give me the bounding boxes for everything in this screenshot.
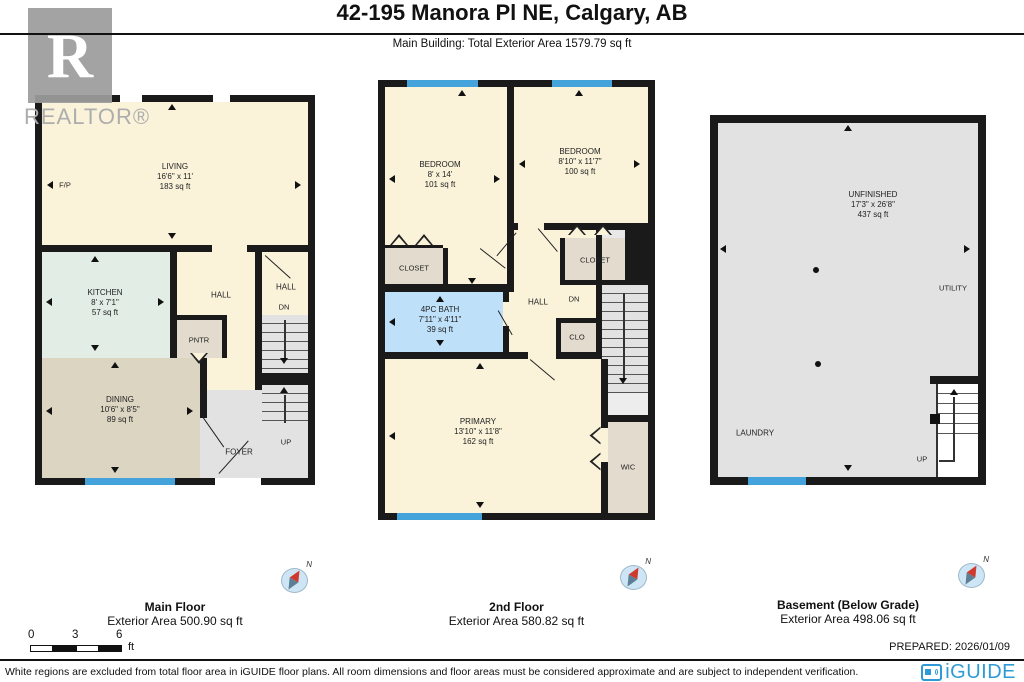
stair-arrow-stem (284, 395, 286, 423)
door-gap (528, 352, 556, 359)
room-name: UNFINISHED (849, 190, 898, 200)
floor-area: Exterior Area 580.82 sq ft (378, 614, 655, 628)
wall (385, 352, 510, 359)
page-subtitle: Main Building: Total Exterior Area 1579.… (0, 38, 1024, 50)
wall (596, 223, 602, 359)
primary-bedroom-label: PRIMARY 13'10" x 11'8" 162 sq ft (454, 417, 502, 447)
stair-arrow-down (619, 378, 627, 384)
scale-segment (53, 645, 76, 652)
stair-arrow-stem (953, 397, 955, 461)
wall (507, 87, 514, 223)
utility-label: UTILITY (939, 284, 967, 293)
floor-plan-page: 42-195 Manora Pl NE, Calgary, AB Main Bu… (0, 0, 1024, 682)
room-area: 100 sq ft (558, 167, 601, 177)
second-floor-caption: 2nd Floor Exterior Area 580.82 sq ft (378, 600, 655, 628)
footer-divider (0, 659, 1024, 661)
stair-arrow-up (950, 389, 958, 395)
dimension-arrow (720, 245, 726, 253)
dimension-arrow (111, 467, 119, 473)
wall (560, 280, 625, 285)
dimension-arrow (519, 160, 525, 168)
room-name: LIVING (157, 162, 193, 172)
wall (255, 245, 262, 390)
support-post-dot (813, 267, 819, 273)
room-area: 39 sq ft (419, 325, 462, 335)
support-post-dot (815, 361, 821, 367)
window (552, 80, 612, 87)
dimension-arrow (436, 340, 444, 346)
stair-arrow-down (280, 358, 288, 364)
bedroom-1-label: BEDROOM 8' x 14' 101 sq ft (419, 160, 460, 190)
dimension-arrow (168, 104, 176, 110)
pantry-door-icon (190, 353, 208, 364)
pantry-label: PNTR (189, 336, 209, 345)
room-name: 4PC BATH (419, 305, 462, 315)
wall (556, 318, 596, 323)
dimension-arrow (575, 90, 583, 96)
room-area: 437 sq ft (849, 210, 898, 220)
iguide-logo-icon (921, 664, 942, 681)
scale-bar: 0 3 6 ft (28, 629, 178, 655)
kitchen-label: KITCHEN 8' x 7'1" 57 sq ft (87, 288, 122, 318)
room-dims: 16'6" x 11' (157, 172, 193, 182)
dimension-arrow (476, 363, 484, 369)
dimension-arrow (844, 125, 852, 131)
main-floor-plan: LIVING 16'6" x 11' 183 sq ft KITCHEN 8' … (35, 95, 315, 485)
stairs-up-label: UP (281, 438, 291, 447)
room-dims: 13'10" x 11'8" (454, 427, 502, 437)
dimension-arrow (494, 175, 500, 183)
bathroom-label: 4PC BATH 7'11" x 4'11" 39 sq ft (419, 305, 462, 335)
room-area: 57 sq ft (87, 308, 122, 318)
living-room-label: LIVING 16'6" x 11' 183 sq ft (157, 162, 193, 192)
door-gap (518, 223, 544, 230)
page-title: 42-195 Manora Pl NE, Calgary, AB (0, 0, 1024, 26)
dimension-arrow (46, 298, 52, 306)
window (397, 513, 482, 520)
bifold-door-icon (594, 224, 612, 235)
compass-north-label: N (983, 555, 989, 564)
wall (602, 415, 648, 422)
dimension-arrow (458, 90, 466, 96)
bifold-door-icon (568, 224, 586, 235)
dimension-arrow (158, 298, 164, 306)
dimension-arrow (389, 318, 395, 326)
dimension-arrow (389, 175, 395, 183)
stair-arrow-stem (623, 293, 625, 379)
bifold-gap (601, 428, 608, 462)
basement-plan: UNFINISHED 17'3" x 26'8" 437 sq ft UTILI… (710, 115, 986, 485)
bifold-door-icon (390, 234, 408, 245)
floor-area: Exterior Area 500.90 sq ft (35, 614, 315, 628)
dimension-arrow (964, 245, 970, 253)
stair-landing-wall (262, 375, 288, 381)
hall-label: HALL (211, 291, 231, 300)
dimension-arrow (168, 233, 176, 239)
room-dims: 10'6" x 8'5" (100, 405, 139, 415)
hall-closet-label: CLO (569, 333, 584, 342)
stair-arrow-stem (939, 460, 955, 462)
floor-name: Main Floor (35, 600, 315, 614)
window (748, 477, 806, 485)
closet-label: CLOSET (399, 264, 429, 273)
scale-tick: 6 (116, 629, 122, 641)
wall (200, 358, 207, 418)
wall (556, 318, 561, 353)
scale-segment (99, 645, 122, 652)
stairs-dn-label: DN (279, 303, 290, 312)
wall (170, 252, 177, 358)
iguide-icon-inner (925, 669, 931, 675)
room-dims: 7'11" x 4'11" (419, 315, 462, 325)
room-dims: 8'10" x 11'7" (558, 157, 601, 167)
room-area: 89 sq ft (100, 415, 139, 425)
stair-arrow-stem (284, 320, 286, 358)
dimension-arrow (436, 296, 444, 302)
room-area: 101 sq ft (419, 180, 460, 190)
iguide-logo: iGUIDE (921, 661, 1016, 682)
stairs-treads (602, 285, 648, 393)
dimension-arrow (389, 432, 395, 440)
compass-icon: N (617, 559, 651, 593)
bedroom-2-label: BEDROOM 8'10" x 11'7" 100 sq ft (558, 147, 601, 177)
compass-icon: N (278, 562, 312, 596)
window-gap (120, 95, 142, 102)
main-floor-caption: Main Floor Exterior Area 500.90 sq ft (35, 600, 315, 628)
compass-north-label: N (645, 557, 651, 566)
scale-tick: 3 (72, 629, 78, 641)
stair-arrow-up (280, 387, 288, 393)
dimension-arrow (634, 160, 640, 168)
second-floor-plan: BEDROOM 8' x 14' 101 sq ft BEDROOM 8'10"… (378, 80, 655, 520)
header-divider (0, 33, 1024, 35)
laundry-label: LAUNDRY (736, 429, 774, 438)
dining-room-label: DINING 10'6" x 8'5" 89 sq ft (100, 395, 139, 425)
stairs-dn-label: DN (569, 295, 580, 304)
floor-name: 2nd Floor (378, 600, 655, 614)
unfinished-label: UNFINISHED 17'3" x 26'8" 437 sq ft (849, 190, 898, 220)
compass-icon: N (955, 557, 989, 591)
basement-caption: Basement (Below Grade) Exterior Area 498… (710, 598, 986, 626)
wall (560, 238, 565, 280)
wall (385, 284, 507, 292)
bifold-door-icon (415, 234, 433, 245)
iguide-logo-text: iGUIDE (945, 661, 1016, 682)
scale-bar-segments (30, 645, 122, 652)
room-area: 162 sq ft (454, 437, 502, 447)
scale-unit: ft (128, 641, 134, 653)
scale-segment (76, 645, 99, 652)
stairs-up-label: UP (917, 455, 927, 464)
room-name: BEDROOM (419, 160, 460, 170)
room-dims: 17'3" x 26'8" (849, 200, 898, 210)
wall (177, 315, 227, 320)
room-name: KITCHEN (87, 288, 122, 298)
room-name: PRIMARY (454, 417, 502, 427)
disclaimer-text: White regions are excluded from total fl… (5, 666, 905, 678)
dimension-arrow (47, 181, 53, 189)
closet-label: CLOSET (580, 256, 610, 265)
room-name: DINING (100, 395, 139, 405)
scale-tick: 0 (28, 629, 34, 641)
floor-name: Basement (Below Grade) (710, 598, 986, 612)
dimension-arrow (187, 407, 193, 415)
room-dims: 8' x 14' (419, 170, 460, 180)
dimension-arrow (295, 181, 301, 189)
window (85, 478, 175, 485)
realtor-logo-text: REALTOR® (24, 104, 144, 130)
wall (930, 376, 986, 384)
dimension-arrow (91, 256, 99, 262)
dimension-arrow (91, 345, 99, 351)
room-area: 183 sq ft (157, 182, 193, 192)
stair-edge-line (936, 384, 938, 477)
wall (222, 320, 227, 358)
window-gap (213, 95, 230, 102)
bifold-door-icon (590, 427, 601, 445)
dimension-arrow (468, 278, 476, 284)
wic-label: WIC (621, 463, 636, 472)
dimension-arrow (476, 502, 484, 508)
hall-label: HALL (528, 298, 548, 307)
wall (625, 223, 648, 285)
stair-post (930, 414, 940, 424)
room-dims: 8' x 7'1" (87, 298, 122, 308)
iguide-icon-lens (935, 669, 938, 675)
scale-segment (30, 645, 53, 652)
hall-label: HALL (276, 283, 296, 292)
bifold-door-icon (590, 453, 601, 471)
front-door-gap (215, 478, 261, 485)
dimension-arrow (111, 362, 119, 368)
dimension-arrow (844, 465, 852, 471)
wall (42, 245, 212, 252)
compass-north-label: N (306, 560, 312, 569)
prepared-date: PREPARED: 2026/01/09 (889, 641, 1010, 653)
window (407, 80, 478, 87)
fireplace-label: F/P (59, 181, 71, 190)
stair-bottom (602, 393, 648, 415)
dimension-arrow (46, 407, 52, 415)
room-name: BEDROOM (558, 147, 601, 157)
foyer-label: FOYER (225, 448, 253, 457)
floor-area: Exterior Area 498.06 sq ft (710, 612, 986, 626)
